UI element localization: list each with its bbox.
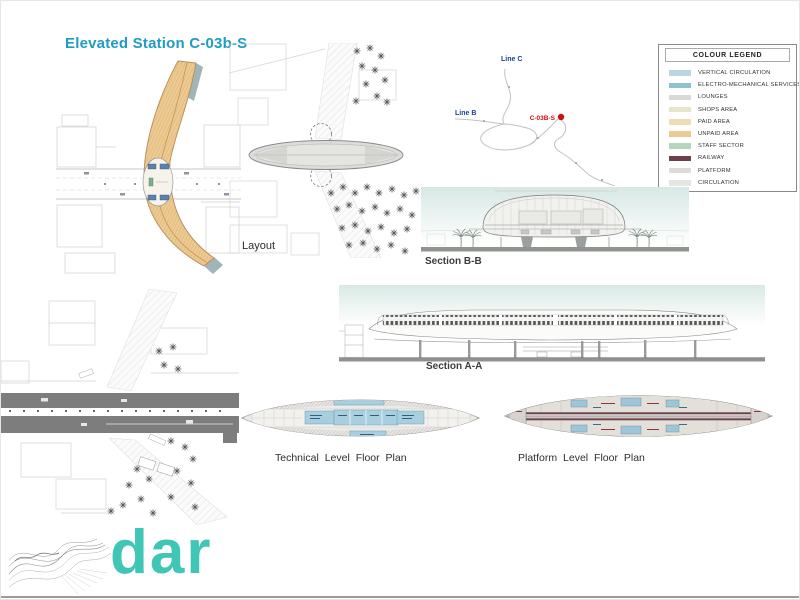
- legend-item-label: PAID AREA: [698, 119, 730, 125]
- route-line: [455, 69, 615, 186]
- legend-swatch: [669, 83, 691, 89]
- railway-tracks: [501, 412, 777, 420]
- legend-item-label: VERTICAL CIRCULATION: [698, 70, 771, 76]
- pier: [575, 237, 587, 247]
- legend-item: PAID AREA: [669, 116, 796, 128]
- line-c-label: Line C: [501, 56, 522, 63]
- ground: [421, 247, 689, 252]
- legend-item-label: CIRCULATION: [698, 180, 739, 186]
- legend-swatch: [669, 180, 691, 186]
- ground: [339, 358, 765, 362]
- station-label: C-03B-S: [530, 115, 556, 122]
- legend-item: LOUNGES: [669, 91, 796, 103]
- technical-floor-plan: [238, 387, 484, 451]
- legend-item: RAILWAY: [669, 152, 796, 164]
- layout-label: Layout: [242, 240, 275, 252]
- legend-swatch: [669, 168, 691, 174]
- colour-legend: COLOUR LEGEND VERTICAL CIRCULATION ELECT…: [658, 44, 797, 192]
- left-structure: [339, 325, 363, 358]
- layout-plan: [229, 43, 424, 258]
- platform-plan-label: Platform Level Floor Plan: [518, 452, 645, 464]
- legend-item: ELECTRO-MECHANICAL SERVICES: [669, 79, 796, 91]
- logo-text: dar: [110, 522, 212, 584]
- technical-plan-label: Technical Level Floor Plan: [275, 452, 407, 464]
- bus: [148, 434, 166, 445]
- legend-item: PLATFORM: [669, 165, 796, 177]
- section-bb-drawing: [421, 187, 689, 257]
- legend-item-label: PLATFORM: [698, 168, 731, 174]
- legend-swatch: [669, 119, 691, 125]
- legend-items: VERTICAL CIRCULATION ELECTRO-MECHANICAL …: [659, 62, 796, 189]
- footer-rule: [1, 596, 800, 598]
- line-b-label: Line B: [455, 110, 476, 117]
- legend-swatch: [669, 70, 691, 76]
- legend-swatch: [669, 156, 691, 162]
- section-bb-label: Section B-B: [425, 256, 482, 267]
- understructure: [523, 347, 608, 357]
- legend-item-label: UNPAID AREA: [698, 131, 739, 137]
- legend-swatch: [669, 107, 691, 113]
- station-marker: [558, 114, 564, 120]
- legend-swatch: [669, 143, 691, 149]
- legend-title: COLOUR LEGEND: [665, 48, 790, 62]
- logo-wave-graphic: [9, 517, 119, 597]
- legend-item-label: RAILWAY: [698, 155, 724, 161]
- site-plan-roadway: [1, 273, 241, 525]
- legend-item-label: SHOPS AREA: [698, 107, 737, 113]
- legend-item: VERTICAL CIRCULATION: [669, 67, 796, 79]
- section-aa-label: Section A-A: [426, 361, 482, 372]
- legend-item-label: LOUNGES: [698, 94, 728, 100]
- legend-item: SHOPS AREA: [669, 104, 796, 116]
- page-title: Elevated Station C-03b-S: [65, 35, 247, 52]
- platform-floor-plan: [501, 385, 777, 449]
- station-lens-roof: [249, 141, 403, 170]
- legend-item-label: ELECTRO-MECHANICAL SERVICES: [698, 82, 800, 88]
- station-canopy: [143, 61, 223, 274]
- legend-item: STAFF SECTOR: [669, 140, 796, 152]
- legend-swatch: [669, 131, 691, 137]
- legend-item-label: STAFF SECTOR: [698, 143, 744, 149]
- legend-swatch: [669, 95, 691, 101]
- main-road: [1, 393, 239, 476]
- legend-item: UNPAID AREA: [669, 128, 796, 140]
- station-long-section: [369, 310, 737, 343]
- section-aa-drawing: [339, 283, 765, 367]
- site-plan-canopy: [56, 57, 241, 277]
- route-map: Line C Line B C-03B-S: [453, 46, 638, 186]
- pier: [521, 237, 533, 247]
- presentation-slide: Elevated Station C-03b-S: [0, 0, 800, 600]
